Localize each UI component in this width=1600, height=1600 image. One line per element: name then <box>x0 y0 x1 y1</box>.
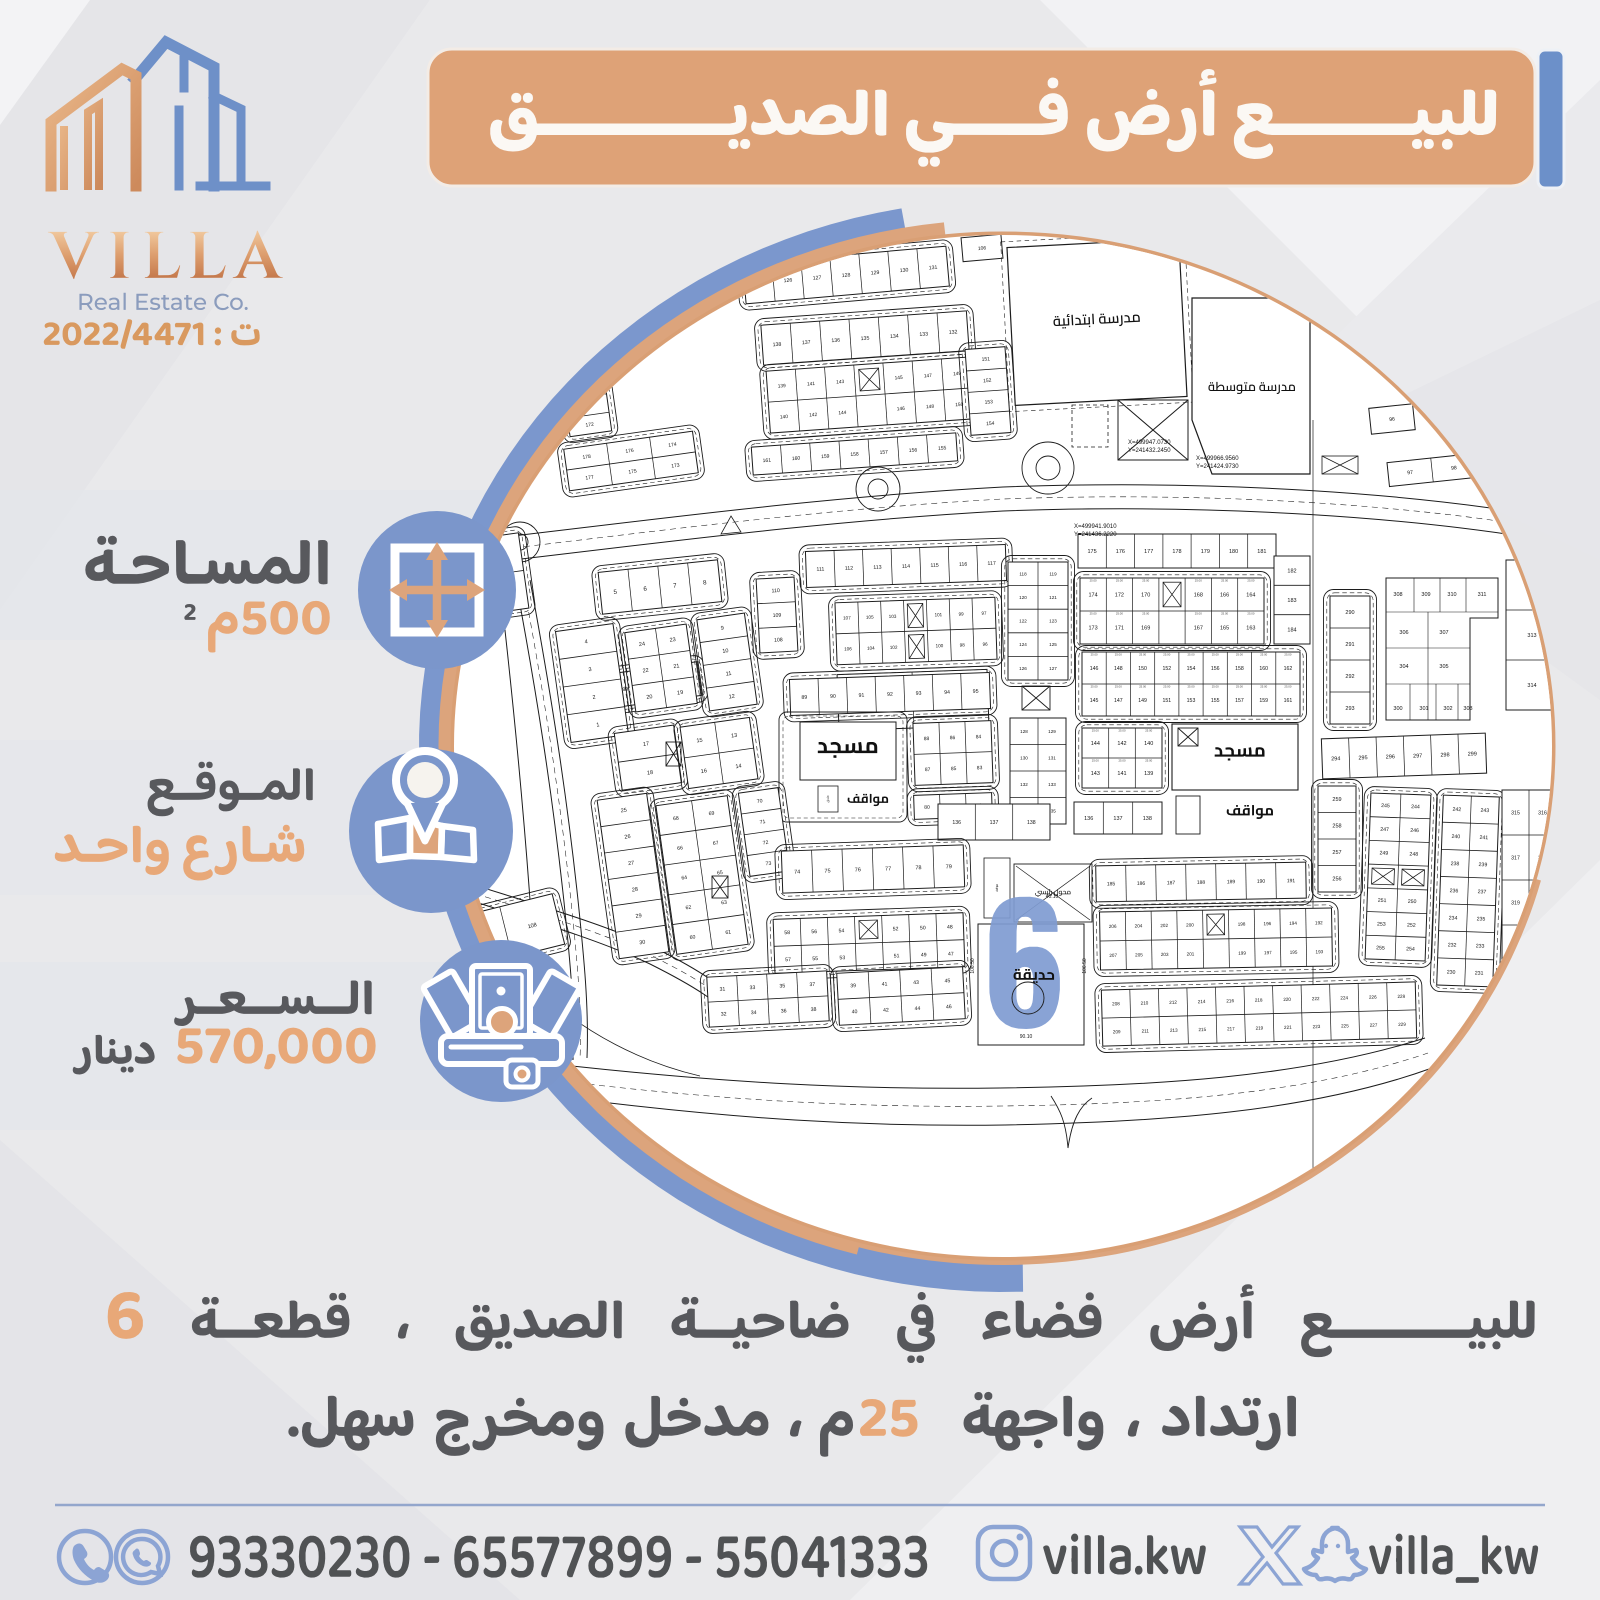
svg-text:25.00: 25.00 <box>1212 684 1219 688</box>
svg-text:71: 71 <box>759 819 766 826</box>
svg-text:158: 158 <box>850 451 859 458</box>
svg-text:190: 190 <box>1257 879 1266 885</box>
svg-text:155: 155 <box>1211 698 1220 704</box>
svg-text:106.50: 106.50 <box>970 958 976 974</box>
svg-text:124: 124 <box>1019 642 1027 647</box>
svg-text:80: 80 <box>924 805 930 811</box>
svg-text:106: 106 <box>844 646 852 651</box>
svg-text:177: 177 <box>585 475 594 482</box>
svg-text:17: 17 <box>643 741 650 748</box>
svg-text:25.00: 25.00 <box>1139 684 1146 688</box>
svg-text:168: 168 <box>1194 592 1203 598</box>
svg-text:256: 256 <box>1332 877 1341 883</box>
svg-text:175: 175 <box>1088 549 1097 555</box>
svg-text:93: 93 <box>916 691 922 697</box>
svg-text:83: 83 <box>977 765 983 771</box>
svg-text:291: 291 <box>1345 642 1354 648</box>
svg-text:174: 174 <box>1089 592 1098 598</box>
svg-text:97: 97 <box>1407 470 1413 477</box>
svg-text:195: 195 <box>1290 950 1298 955</box>
svg-text:92: 92 <box>887 692 893 698</box>
svg-text:138: 138 <box>772 342 781 349</box>
svg-text:111: 111 <box>816 567 824 573</box>
svg-text:298: 298 <box>1440 752 1449 758</box>
svg-text:121: 121 <box>1049 595 1057 600</box>
svg-text:292: 292 <box>1345 674 1354 680</box>
svg-text:176: 176 <box>625 448 634 455</box>
svg-text:X=499966.9560: X=499966.9560 <box>1196 456 1239 462</box>
svg-text:193: 193 <box>1315 949 1323 954</box>
svg-text:295: 295 <box>1358 755 1367 761</box>
svg-text:25.00: 25.00 <box>1119 758 1126 762</box>
svg-text:183: 183 <box>1287 598 1296 604</box>
svg-text:22: 22 <box>642 668 649 675</box>
svg-text:41: 41 <box>882 981 888 987</box>
svg-text:227: 227 <box>1370 1022 1378 1027</box>
svg-text:233: 233 <box>1476 943 1485 949</box>
svg-text:208: 208 <box>1112 1001 1120 1006</box>
svg-text:212: 212 <box>1169 1000 1177 1005</box>
svg-text:63: 63 <box>721 900 728 907</box>
svg-text:161: 161 <box>762 458 771 465</box>
svg-text:25.00: 25.00 <box>1236 652 1243 656</box>
svg-text:144: 144 <box>838 410 847 417</box>
svg-text:114: 114 <box>902 564 911 570</box>
svg-text:25.00: 25.00 <box>1145 758 1152 762</box>
svg-text:160: 160 <box>1259 666 1268 672</box>
svg-text:141: 141 <box>807 381 816 388</box>
svg-text:25.00: 25.00 <box>1145 728 1152 732</box>
svg-text:310: 310 <box>1447 592 1456 598</box>
svg-text:138: 138 <box>1027 820 1036 826</box>
svg-text:307: 307 <box>1439 630 1448 636</box>
svg-text:140: 140 <box>780 414 789 421</box>
svg-text:64: 64 <box>681 875 688 882</box>
svg-text:32: 32 <box>721 1011 727 1017</box>
svg-text:25.00: 25.00 <box>1090 611 1097 615</box>
svg-text:28: 28 <box>632 887 639 894</box>
svg-text:302: 302 <box>1443 706 1452 712</box>
svg-text:54: 54 <box>838 928 844 934</box>
svg-text:243: 243 <box>1480 808 1489 814</box>
svg-text:105: 105 <box>866 615 874 620</box>
svg-text:33: 33 <box>749 985 755 991</box>
svg-text:69: 69 <box>708 810 715 817</box>
svg-text:40.10: 40.10 <box>1046 894 1059 900</box>
svg-text:154: 154 <box>986 421 995 428</box>
svg-text:25.00: 25.00 <box>1142 611 1149 615</box>
svg-text:176: 176 <box>1116 549 1125 555</box>
svg-text:139: 139 <box>778 383 787 390</box>
svg-text:125: 125 <box>1049 642 1057 647</box>
svg-text:90: 90 <box>830 694 836 700</box>
svg-text:192: 192 <box>1315 920 1323 925</box>
svg-text:135: 135 <box>861 335 870 342</box>
svg-text:218: 218 <box>1255 997 1263 1002</box>
svg-text:158: 158 <box>1235 666 1244 672</box>
svg-text:Y=241436.2220: Y=241436.2220 <box>1074 532 1117 538</box>
svg-text:207: 207 <box>1109 953 1117 958</box>
svg-text:25.00: 25.00 <box>1163 684 1170 688</box>
svg-text:234: 234 <box>1449 915 1458 921</box>
svg-text:98: 98 <box>960 642 966 647</box>
svg-text:197: 197 <box>1264 950 1272 955</box>
svg-text:131: 131 <box>1048 755 1056 760</box>
svg-text:97: 97 <box>981 611 987 616</box>
svg-text:217: 217 <box>1227 1026 1235 1031</box>
svg-text:148: 148 <box>926 404 935 411</box>
svg-text:103: 103 <box>889 614 897 619</box>
svg-text:236: 236 <box>1450 888 1459 894</box>
svg-text:225: 225 <box>1341 1023 1349 1028</box>
svg-text:141: 141 <box>1117 771 1126 777</box>
svg-text:303: 303 <box>1463 706 1472 712</box>
svg-text:185: 185 <box>1107 881 1116 887</box>
svg-text:157: 157 <box>1235 698 1244 704</box>
svg-text:58: 58 <box>784 930 790 936</box>
svg-text:304: 304 <box>1399 664 1408 670</box>
svg-text:255: 255 <box>1376 945 1385 951</box>
svg-text:25.00: 25.00 <box>1119 728 1126 732</box>
svg-text:25.00: 25.00 <box>1188 652 1195 656</box>
svg-text:25.00: 25.00 <box>1092 728 1099 732</box>
svg-text:196: 196 <box>1263 921 1271 926</box>
svg-text:25.00: 25.00 <box>1139 652 1146 656</box>
svg-text:244: 244 <box>1411 804 1420 810</box>
svg-text:25.00: 25.00 <box>1212 652 1219 656</box>
svg-text:254: 254 <box>1406 946 1415 952</box>
svg-text:144: 144 <box>1091 741 1100 747</box>
svg-text:242: 242 <box>1452 807 1461 813</box>
svg-text:146: 146 <box>897 406 906 413</box>
svg-text:34: 34 <box>751 1010 757 1016</box>
svg-text:187: 187 <box>1167 880 1176 886</box>
svg-text:84: 84 <box>976 734 982 740</box>
svg-text:73: 73 <box>765 861 772 868</box>
svg-text:98: 98 <box>1451 465 1457 472</box>
svg-text:38: 38 <box>811 1007 817 1013</box>
svg-text:39: 39 <box>850 983 856 989</box>
svg-text:50: 50 <box>920 925 926 931</box>
svg-text:127: 127 <box>813 275 822 282</box>
svg-text:25.00: 25.00 <box>1284 652 1291 656</box>
svg-text:53: 53 <box>839 955 845 961</box>
svg-text:156: 156 <box>909 447 918 454</box>
svg-text:203: 203 <box>1161 952 1169 957</box>
svg-text:253: 253 <box>1377 921 1386 927</box>
svg-text:146: 146 <box>1090 666 1099 672</box>
svg-text:317: 317 <box>1511 855 1520 861</box>
svg-text:167: 167 <box>1194 625 1203 631</box>
svg-text:25.00: 25.00 <box>1260 652 1267 656</box>
svg-text:149: 149 <box>1138 698 1147 704</box>
svg-text:85: 85 <box>951 766 957 772</box>
svg-text:142: 142 <box>1117 741 1126 747</box>
svg-text:31: 31 <box>719 987 725 993</box>
svg-text:189: 189 <box>1227 879 1236 885</box>
svg-text:126: 126 <box>783 278 792 285</box>
svg-text:246: 246 <box>1410 828 1419 834</box>
svg-text:191: 191 <box>1287 878 1296 884</box>
svg-text:133: 133 <box>919 331 928 338</box>
svg-text:91: 91 <box>858 693 864 699</box>
svg-text:129: 129 <box>870 270 879 277</box>
svg-text:133: 133 <box>1048 782 1056 787</box>
svg-text:206: 206 <box>1109 924 1117 929</box>
svg-text:46: 46 <box>946 1004 952 1010</box>
svg-text:156: 156 <box>1211 666 1220 672</box>
svg-text:315: 315 <box>1511 810 1520 816</box>
svg-text:151: 151 <box>1162 698 1171 704</box>
svg-text:166: 166 <box>1220 592 1229 598</box>
svg-text:159: 159 <box>1259 698 1268 704</box>
svg-text:211: 211 <box>1141 1028 1149 1033</box>
svg-text:171: 171 <box>1115 625 1124 631</box>
svg-text:252: 252 <box>1407 923 1416 929</box>
svg-text:232: 232 <box>1448 942 1457 948</box>
svg-text:153: 153 <box>1187 698 1196 704</box>
svg-text:25: 25 <box>620 808 627 815</box>
svg-text:152: 152 <box>983 378 992 385</box>
svg-text:13: 13 <box>731 733 738 740</box>
svg-text:40: 40 <box>852 1009 858 1015</box>
svg-text:117: 117 <box>987 561 996 567</box>
svg-text:131: 131 <box>929 265 938 272</box>
svg-text:173: 173 <box>1089 625 1098 631</box>
svg-text:X=499941.9010: X=499941.9010 <box>1074 524 1117 530</box>
svg-text:210: 210 <box>1141 1000 1149 1005</box>
svg-text:162: 162 <box>1284 666 1293 672</box>
svg-text:Y=241424.9730: Y=241424.9730 <box>1196 464 1239 470</box>
svg-text:235: 235 <box>1477 916 1486 922</box>
svg-text:116: 116 <box>959 562 968 568</box>
svg-text:25.00: 25.00 <box>1247 578 1254 582</box>
svg-text:132: 132 <box>1020 782 1028 787</box>
svg-text:86: 86 <box>950 735 956 741</box>
svg-text:159: 159 <box>821 454 830 461</box>
svg-text:143: 143 <box>836 379 845 386</box>
svg-text:110: 110 <box>771 588 780 594</box>
svg-text:95: 95 <box>973 689 979 695</box>
svg-text:221: 221 <box>1284 1025 1292 1030</box>
svg-text:297: 297 <box>1413 753 1422 759</box>
svg-text:214: 214 <box>1198 999 1206 1004</box>
svg-text:229: 229 <box>1398 1022 1406 1027</box>
svg-text:96: 96 <box>982 642 988 647</box>
svg-text:200: 200 <box>1186 922 1194 927</box>
svg-text:128: 128 <box>841 272 850 279</box>
svg-text:25.00: 25.00 <box>1115 684 1122 688</box>
svg-text:25.00: 25.00 <box>1116 611 1123 615</box>
svg-text:25.00: 25.00 <box>1091 652 1098 656</box>
svg-text:56: 56 <box>811 929 817 935</box>
svg-text:290: 290 <box>1345 610 1354 616</box>
svg-text:145: 145 <box>1090 698 1099 704</box>
svg-text:104: 104 <box>867 646 875 651</box>
svg-text:25.00: 25.00 <box>1260 684 1267 688</box>
svg-text:169: 169 <box>1141 625 1150 631</box>
svg-text:178: 178 <box>582 454 591 461</box>
svg-text:248: 248 <box>1409 851 1418 857</box>
svg-text:25.00: 25.00 <box>1090 578 1097 582</box>
svg-text:10: 10 <box>722 648 729 655</box>
svg-text:35: 35 <box>779 983 785 989</box>
svg-text:101: 101 <box>934 612 942 617</box>
svg-text:106.50: 106.50 <box>1082 958 1088 974</box>
svg-text:228: 228 <box>1397 994 1405 999</box>
svg-text:164: 164 <box>1246 592 1255 598</box>
svg-text:49: 49 <box>921 952 927 958</box>
svg-text:161: 161 <box>1284 698 1293 704</box>
svg-text:138: 138 <box>1143 816 1152 822</box>
svg-text:123: 123 <box>1049 619 1057 624</box>
svg-text:294: 294 <box>1331 756 1340 762</box>
svg-text:220: 220 <box>1283 997 1291 1002</box>
svg-text:216: 216 <box>1226 998 1234 1003</box>
svg-text:204: 204 <box>1135 923 1143 928</box>
svg-text:Y=241432.2450: Y=241432.2450 <box>1128 448 1171 454</box>
svg-text:172: 172 <box>1115 592 1124 598</box>
svg-text:26: 26 <box>624 834 631 841</box>
svg-text:75: 75 <box>824 868 830 874</box>
svg-text:224: 224 <box>1340 995 1348 1000</box>
svg-text:67: 67 <box>712 840 719 847</box>
svg-text:180: 180 <box>1229 549 1238 555</box>
svg-text:68: 68 <box>673 815 680 822</box>
svg-text:238: 238 <box>1450 861 1459 867</box>
svg-text:293: 293 <box>1345 706 1354 712</box>
svg-text:306: 306 <box>1399 630 1408 636</box>
svg-text:163: 163 <box>1246 625 1255 631</box>
svg-text:47: 47 <box>948 951 954 957</box>
svg-text:230: 230 <box>1447 970 1456 976</box>
svg-text:66: 66 <box>677 845 684 852</box>
svg-text:179: 179 <box>1201 549 1210 555</box>
svg-text:118: 118 <box>1019 571 1027 576</box>
svg-text:14: 14 <box>735 763 742 770</box>
svg-text:55: 55 <box>812 956 818 962</box>
svg-text:36: 36 <box>781 1008 787 1014</box>
svg-text:25.00: 25.00 <box>1142 578 1149 582</box>
svg-text:174: 174 <box>668 442 677 449</box>
svg-text:94: 94 <box>944 690 950 696</box>
svg-text:172: 172 <box>585 422 594 429</box>
svg-text:23: 23 <box>669 637 676 644</box>
svg-text:316: 316 <box>1538 810 1547 816</box>
svg-text:106: 106 <box>978 245 987 252</box>
svg-text:112: 112 <box>845 566 854 572</box>
svg-text:109: 109 <box>773 613 782 619</box>
svg-text:239: 239 <box>1478 862 1487 868</box>
svg-text:130: 130 <box>900 267 909 274</box>
svg-text:20: 20 <box>646 694 653 701</box>
svg-text:25.00: 25.00 <box>1221 578 1228 582</box>
svg-text:25.00: 25.00 <box>1115 652 1122 656</box>
svg-text:126: 126 <box>1019 666 1027 671</box>
svg-text:226: 226 <box>1369 995 1377 1000</box>
svg-text:170: 170 <box>1141 592 1150 598</box>
svg-text:186: 186 <box>1137 881 1146 887</box>
svg-text:177: 177 <box>1144 549 1153 555</box>
svg-text:88: 88 <box>924 736 930 742</box>
svg-text:199: 199 <box>1238 951 1246 956</box>
svg-text:136: 136 <box>831 338 840 345</box>
svg-text:237: 237 <box>1478 889 1487 895</box>
svg-text:148: 148 <box>1114 666 1123 672</box>
svg-text:77: 77 <box>885 866 891 872</box>
svg-text:25.00: 25.00 <box>1092 758 1099 762</box>
svg-text:181: 181 <box>1257 549 1266 555</box>
svg-text:100: 100 <box>936 643 944 648</box>
svg-text:245: 245 <box>1381 803 1390 809</box>
svg-text:152: 152 <box>1162 666 1171 672</box>
svg-text:24: 24 <box>639 641 646 648</box>
svg-text:90.10: 90.10 <box>1020 1034 1033 1040</box>
svg-text:120: 120 <box>1019 595 1027 600</box>
svg-text:222: 222 <box>1312 996 1320 1001</box>
svg-text:188: 188 <box>1197 880 1206 886</box>
svg-text:165: 165 <box>1220 625 1229 631</box>
svg-text:184: 184 <box>1287 627 1296 633</box>
svg-text:194: 194 <box>1289 921 1297 926</box>
svg-text:319: 319 <box>1511 900 1520 906</box>
svg-text:136: 136 <box>952 820 961 826</box>
svg-text:25.00: 25.00 <box>1116 578 1123 582</box>
svg-text:X=499947.0730: X=499947.0730 <box>1128 440 1171 446</box>
svg-text:119: 119 <box>1049 571 1057 576</box>
svg-text:155: 155 <box>938 445 947 452</box>
svg-text:30: 30 <box>639 940 646 947</box>
svg-text:16: 16 <box>701 768 708 775</box>
svg-text:143: 143 <box>1091 771 1100 777</box>
svg-text:76: 76 <box>855 867 861 873</box>
svg-text:219: 219 <box>1255 1025 1263 1030</box>
svg-text:87: 87 <box>925 767 931 773</box>
svg-text:198: 198 <box>1238 922 1246 927</box>
svg-text:113: 113 <box>873 565 882 571</box>
svg-text:78: 78 <box>915 865 921 871</box>
svg-text:137: 137 <box>1113 816 1122 822</box>
svg-text:57: 57 <box>785 957 791 963</box>
svg-text:305: 305 <box>1439 664 1448 670</box>
svg-text:311: 311 <box>1478 592 1487 598</box>
svg-text:175: 175 <box>628 469 637 476</box>
svg-text:108: 108 <box>774 637 783 643</box>
svg-text:44: 44 <box>914 1006 920 1012</box>
svg-text:29: 29 <box>635 913 642 920</box>
svg-text:140: 140 <box>1144 741 1153 747</box>
svg-text:134: 134 <box>890 333 899 340</box>
svg-text:150: 150 <box>1138 666 1147 672</box>
svg-text:153: 153 <box>984 399 993 406</box>
svg-text:25.00: 25.00 <box>1091 684 1098 688</box>
svg-text:160: 160 <box>792 456 801 463</box>
svg-text:154: 154 <box>1187 666 1196 672</box>
svg-text:202: 202 <box>1160 923 1168 928</box>
svg-text:209: 209 <box>1113 1029 1121 1034</box>
svg-text:137: 137 <box>990 820 999 826</box>
svg-text:147: 147 <box>924 373 933 380</box>
svg-text:301: 301 <box>1419 706 1428 712</box>
svg-text:102: 102 <box>890 645 898 650</box>
svg-text:259: 259 <box>1332 797 1341 803</box>
svg-text:145: 145 <box>894 375 903 382</box>
svg-text:296: 296 <box>1386 754 1395 760</box>
svg-text:11: 11 <box>725 671 731 678</box>
svg-text:173: 173 <box>671 462 680 469</box>
svg-text:25.00: 25.00 <box>1247 611 1254 615</box>
svg-text:241: 241 <box>1479 835 1488 841</box>
